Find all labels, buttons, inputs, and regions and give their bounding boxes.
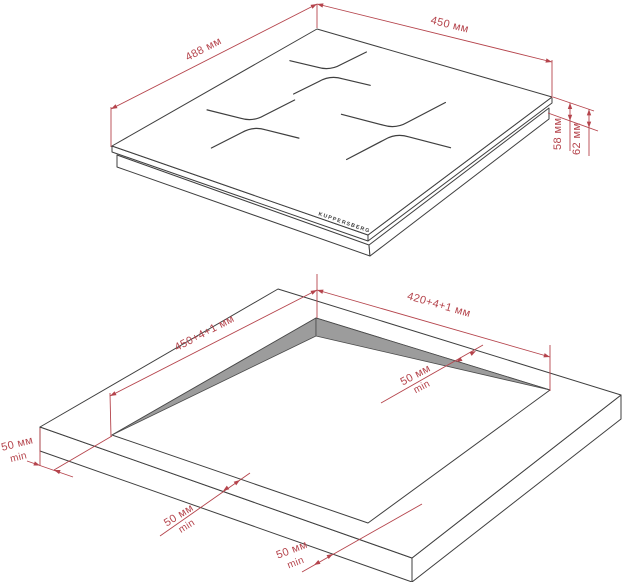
technical-drawing-page: KUPPERSBERG 488 мм 450 мм 58 мм [0,0,625,582]
hob-glass-surface [112,29,552,235]
hob-height-body-label: 58 мм [552,118,564,150]
cutout-installation-view: 450+4+1 мм 420+4+1 мм 50 мм min [0,274,621,582]
hob-depth-label: 450 мм [429,15,470,36]
hob-height-dimensions: 58 мм 62 мм [548,97,598,156]
hob-width-label: 488 мм [184,35,224,64]
hob-height-total-label: 62 мм [571,123,583,155]
hob-dimensions-diagram: KUPPERSBERG 488 мм 450 мм 58 мм [0,0,625,582]
clearance-left-value: 50 мм [0,434,34,453]
hob-top-view: KUPPERSBERG 488 мм 450 мм 58 мм [110,2,598,256]
cutout-depth-label: 420+4+1 мм [406,290,472,320]
clearance-left-min: min [9,450,28,465]
